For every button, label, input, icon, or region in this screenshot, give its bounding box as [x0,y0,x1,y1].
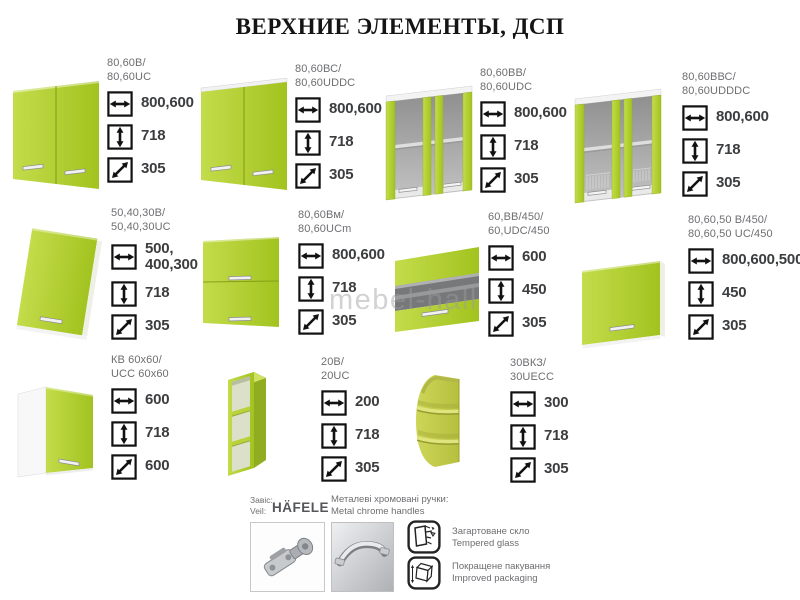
width-value: 800,600 [329,101,382,118]
height-value: 718 [145,425,169,442]
hinge-label: Завіс:Veil: [250,495,273,518]
width-arrow-icon [298,243,324,269]
height-value: 450 [722,285,746,302]
depth-value: 305 [329,167,353,184]
width-arrow-icon [111,388,137,414]
width-arrow-icon [510,391,536,417]
height-arrow-icon [111,421,137,447]
tempered-glass-label: Загартоване склоTempered glass [452,526,530,551]
product-card-8060v: 80,60В/80,60UC 800,600 718 305 [8,56,215,192]
product-card-8060vvc: 80,60ВВС/80,60UDDDC 800,600 718 305 [570,70,790,206]
cabinet-illustration-double-door [196,76,295,194]
product-code: 80,60,50 В/450/80,60,50 UC/450 [688,213,796,242]
cabinet-illustration-glass-doors [381,83,480,203]
height-arrow-icon [111,281,137,307]
height-value: 718 [716,142,740,159]
depth-arrow-icon [321,456,347,482]
depth-value: 305 [522,315,546,332]
improved-packaging-icon [407,556,441,590]
cabinet-illustration-glass-doors-rack [570,86,682,206]
depth-arrow-icon [298,309,324,335]
cabinet-illustration-double-door [8,78,107,192]
cabinet-illustration-flip-doors [196,235,298,333]
height-value: 718 [145,285,169,302]
width-value: 600 [145,392,169,409]
width-arrow-icon [682,105,708,131]
height-arrow-icon [682,138,708,164]
width-arrow-icon [321,390,347,416]
depth-value: 305 [722,318,746,335]
height-arrow-icon [107,124,133,150]
cabinet-illustration-glass-band [381,245,488,337]
product-card-8060vc: 80,60ВС/80,60UDDC 800,600 718 305 [196,62,403,196]
height-value: 718 [329,134,353,151]
width-value: 600 [522,249,546,266]
height-arrow-icon [295,130,321,156]
product-card-806050v450: 80,60,50 В/450/80,60,50 UC/450 800,600,5… [570,213,796,352]
depth-value: 600 [145,458,169,475]
depth-value: 305 [544,461,568,478]
width-value: 800,600 [716,109,769,126]
depth-arrow-icon [510,457,536,483]
depth-arrow-icon [480,167,506,193]
product-card-504030v: 50,40,30В/50,40,30UC 500, 400,300 718 30… [8,206,219,347]
tempered-glass-icon [407,520,441,554]
depth-arrow-icon [682,171,708,197]
height-arrow-icon [321,423,347,449]
width-value: 800,600 [332,247,385,264]
handles-label: Металеві хромовані ручки:Metal chrome ha… [331,494,448,519]
hafele-logo: HÄFELE [272,500,329,515]
width-arrow-icon [488,245,514,271]
height-value: 718 [332,280,356,297]
depth-arrow-icon [111,314,137,340]
height-value: 718 [355,427,379,444]
width-arrow-icon [111,244,137,270]
depth-arrow-icon [688,314,714,340]
height-value: 718 [514,138,538,155]
depth-arrow-icon [488,311,514,337]
cabinet-illustration-rounded-shelf [381,370,510,472]
height-arrow-icon [480,134,506,160]
width-value: 800,600,500 [722,252,800,269]
product-card-8060vv: 80,60ВВ/80,60UDC 800,600 718 305 [381,66,588,203]
cabinet-illustration-open-shelf [196,368,321,476]
width-value: 800,600 [141,95,194,112]
product-card-kv60x60: КВ 60х60/UCC 60х60 600 718 600 [8,353,219,487]
product-card-60vv450: 60,ВВ/450/60,UDC/450 600 450 305 [381,210,596,344]
depth-value: 305 [145,318,169,335]
width-value: 800,600 [514,105,567,122]
depth-value: 305 [716,175,740,192]
depth-arrow-icon [295,163,321,189]
hinge-photo [250,522,325,592]
width-arrow-icon [107,91,133,117]
height-value: 450 [522,282,546,299]
catalog-page: ВЕРХНИЕ ЭЛЕМЕНТЫ, ДСП 80,60В/80,60UC 800… [0,0,800,600]
cabinet-illustration-corner [8,383,111,479]
width-value: 300 [544,395,568,412]
product-code: 30ВКЗ/30UECC [510,356,618,385]
cabinet-illustration-single-door [8,219,111,345]
height-value: 718 [141,128,165,145]
depth-value: 305 [332,313,356,330]
height-arrow-icon [688,281,714,307]
width-arrow-icon [480,101,506,127]
handle-photo [331,522,394,592]
height-value: 718 [544,428,568,445]
width-value: 200 [355,394,379,411]
width-arrow-icon [295,97,321,123]
depth-value: 305 [514,171,538,188]
width-arrow-icon [688,248,714,274]
product-code: 80,60ВВС/80,60UDDDC [682,70,790,99]
cabinet-illustration-flip-door [570,258,688,352]
height-arrow-icon [510,424,536,450]
depth-value: 305 [141,161,165,178]
height-arrow-icon [488,278,514,304]
improved-packaging-label: Покращене пакуванняImproved packaging [452,561,550,586]
page-title: ВЕРХНИЕ ЭЛЕМЕНТЫ, ДСП [0,14,800,40]
product-card-30vkz: 30ВКЗ/30UECC 300 718 305 [381,356,618,490]
product-card-8060vm: 80,60Вм/80,60UCm 800,600 718 305 [196,208,406,342]
height-arrow-icon [298,276,324,302]
depth-value: 305 [355,460,379,477]
depth-arrow-icon [111,454,137,480]
depth-arrow-icon [107,157,133,183]
